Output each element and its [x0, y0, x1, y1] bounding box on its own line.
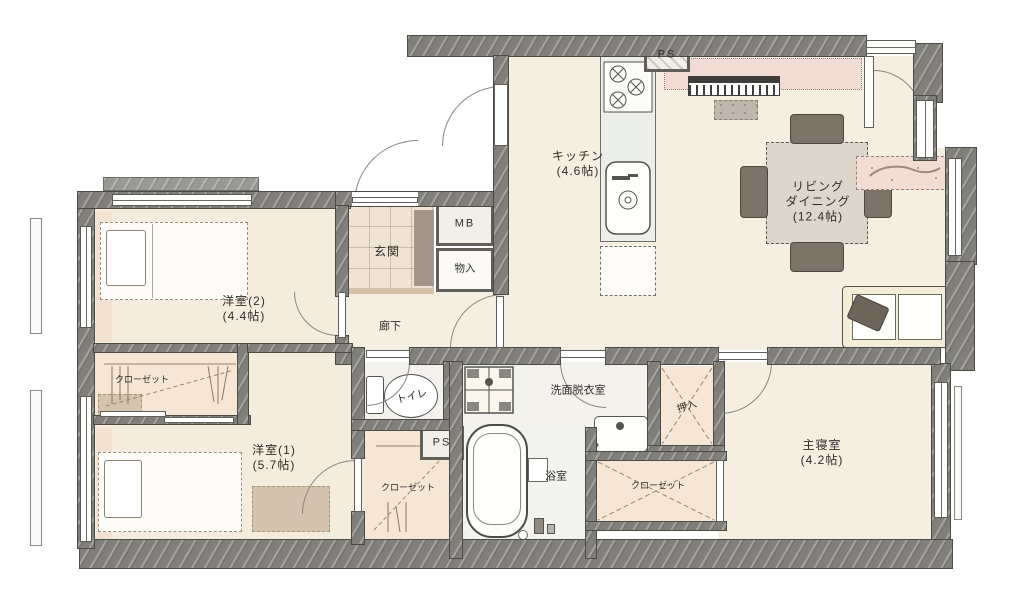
window	[80, 396, 92, 542]
room-label-corridor: 廊下	[379, 320, 401, 335]
room-label-bathroom: 浴室	[545, 470, 567, 485]
entrance-step	[348, 288, 434, 294]
kitchen-sink-icon	[604, 160, 652, 236]
sofa-cushion	[898, 294, 942, 340]
shoe-cabinet	[414, 210, 434, 286]
wall-segment	[408, 36, 866, 56]
wall-segment	[586, 452, 726, 460]
wall-segment	[946, 262, 974, 370]
balcony-rail	[30, 390, 42, 546]
toilet-door-leaf	[366, 350, 410, 358]
room-label-washroom: 洗面脱衣室	[551, 384, 606, 399]
refrigerator	[600, 246, 656, 296]
wall-segment	[410, 348, 560, 364]
room-label-bedroom2: 洋室(2) (4.4帖)	[222, 294, 266, 324]
front-door-leaf	[494, 84, 508, 146]
vanity-faucet	[616, 422, 624, 430]
wall-segment	[914, 44, 942, 102]
wall-segment	[648, 362, 660, 454]
master-door-leaf	[718, 352, 768, 360]
wall-segment	[104, 178, 258, 190]
entrance-door-leaf	[352, 197, 418, 203]
wall-segment	[94, 344, 244, 352]
window	[112, 194, 252, 206]
window	[934, 382, 948, 518]
wall-segment	[336, 206, 348, 296]
wall-segment	[768, 348, 940, 364]
closet-master-slide-door	[716, 460, 724, 522]
wall-segment	[586, 428, 596, 558]
dining-chair	[790, 242, 844, 272]
door-swing-arc	[442, 86, 502, 146]
room-label-kitchen: キッチン (4.6帖)	[552, 149, 604, 179]
room-label-living-dining: リビング ダイニング (12.4帖)	[785, 180, 850, 225]
room-label-bedroom1: 洋室(1) (5.7帖)	[252, 443, 296, 473]
bed-pillow	[106, 230, 146, 286]
label-pipe-space-top: PS	[658, 48, 677, 63]
window	[948, 158, 962, 256]
shelf-decor-icon	[862, 160, 948, 186]
piano-stool	[714, 100, 758, 120]
room-label-master-bedroom: 主寝室 (4.2帖)	[801, 438, 844, 468]
closet-slide-door	[164, 417, 234, 423]
wall-segment	[586, 522, 726, 530]
label-pipe-space-mid: PS	[433, 436, 452, 451]
wall-segment	[352, 348, 364, 458]
wall-segment	[80, 540, 952, 568]
balcony-door-leaf	[864, 56, 874, 128]
bedroom1-door-leaf	[354, 458, 362, 512]
wall-segment	[248, 344, 352, 352]
bath-item	[534, 518, 544, 534]
window	[916, 100, 934, 158]
wall-segment	[352, 512, 364, 544]
label-storage: 物入	[455, 262, 476, 277]
bed-pillow	[104, 460, 142, 518]
label-closet-bedroom2: クローゼット	[115, 373, 169, 388]
dining-chair	[740, 166, 768, 218]
label-meter-box: MB	[455, 217, 476, 232]
wall-segment	[606, 348, 718, 364]
bath-drain	[518, 530, 528, 540]
floor-plan: キッチン (4.6帖) リビング ダイニング (12.4帖) 洋室(2) (4.…	[0, 0, 1024, 594]
dining-chair	[790, 114, 844, 144]
wall-segment	[238, 344, 248, 424]
room-label-entrance: 玄関	[374, 245, 400, 260]
wall-segment	[714, 362, 724, 452]
bedroom2-door-leaf	[338, 292, 346, 338]
wall-segment	[450, 362, 462, 558]
label-closet-bedroom1: クローゼット	[381, 481, 435, 496]
closet-slide-door	[100, 411, 166, 417]
washer-pan-icon	[464, 366, 514, 414]
balcony-rail	[954, 386, 962, 520]
living-door-leaf	[496, 296, 504, 348]
bath-item	[547, 524, 555, 534]
balcony-door-sill	[866, 40, 916, 54]
label-closet-master: クローゼット	[631, 479, 685, 494]
bed-divider	[152, 224, 153, 298]
piano-icon	[688, 76, 780, 96]
bathtub-inner	[473, 433, 521, 525]
balcony-rail	[30, 218, 42, 334]
washroom-door-leaf	[560, 350, 606, 358]
window	[80, 226, 92, 328]
wall-segment	[352, 420, 454, 430]
